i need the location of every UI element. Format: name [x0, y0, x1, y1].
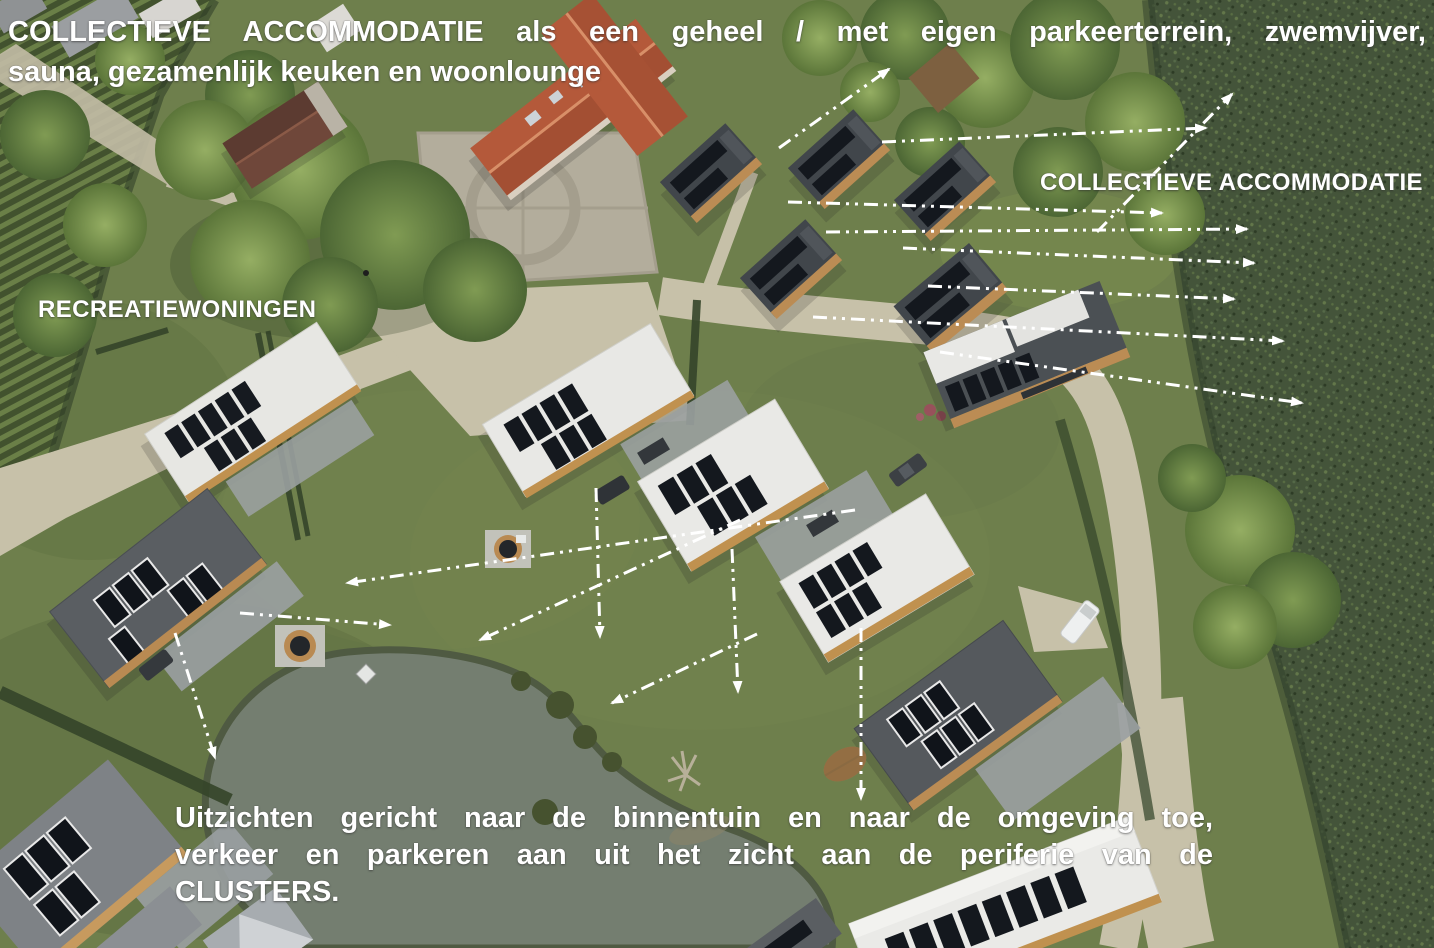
- view-direction-arrow: [732, 549, 738, 692]
- label-collectieve-accommodatie: COLLECTIEVE ACCOMMODATIE: [1040, 169, 1423, 197]
- view-direction-arrow: [480, 520, 740, 640]
- view-direction-arrow: [882, 128, 1206, 142]
- annotation-top-line2: sauna, gezamenlijk keuken en woonlounge: [8, 52, 1426, 92]
- view-direction-arrow: [788, 202, 1162, 213]
- aerial-photo: COLLECTIEVE ACCOMMODATIE als een geheel …: [0, 0, 1434, 948]
- annotation-bottom: Uitzichten gericht naar de binnentuin en…: [175, 800, 1213, 911]
- annotation-bottom-line1: Uitzichten gericht naar de binnentuin en…: [175, 800, 1213, 837]
- view-direction-arrow: [826, 229, 1247, 232]
- view-direction-arrow: [612, 634, 757, 703]
- annotation-bottom-line2: verkeer en parkeren aan uit het zicht aa…: [175, 837, 1213, 874]
- view-direction-arrow: [940, 352, 1302, 403]
- view-direction-arrow: [175, 633, 215, 758]
- annotation-bottom-line3: CLUSTERS.: [175, 874, 1213, 911]
- view-direction-arrow: [813, 317, 1283, 341]
- view-direction-arrow: [928, 286, 1234, 299]
- view-direction-arrow: [596, 488, 600, 637]
- annotation-top: COLLECTIEVE ACCOMMODATIE als een geheel …: [8, 12, 1426, 92]
- annotation-top-line1: COLLECTIEVE ACCOMMODATIE als een geheel …: [8, 12, 1426, 52]
- label-recreatiewoningen: RECREATIEWONINGEN: [38, 296, 316, 324]
- view-direction-arrow: [903, 248, 1254, 263]
- view-direction-arrow: [240, 613, 390, 625]
- view-direction-arrow: [1097, 94, 1232, 232]
- view-direction-arrow: [347, 510, 855, 583]
